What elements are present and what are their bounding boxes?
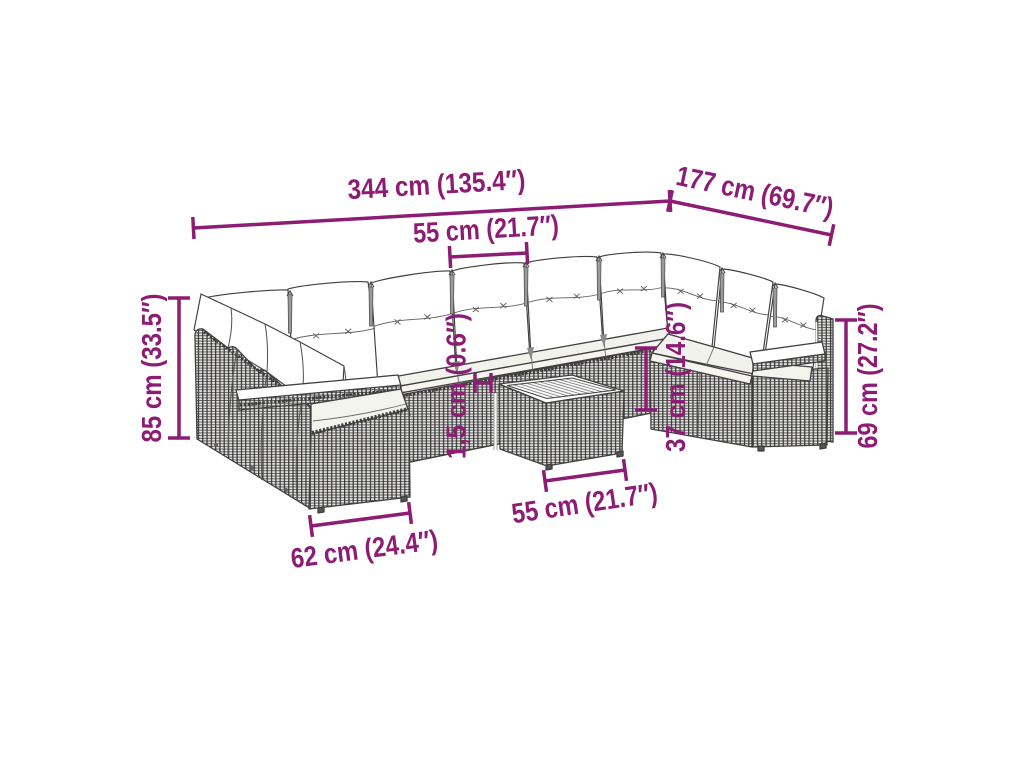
svg-text:69 cm (27.2″): 69 cm (27.2″) bbox=[852, 304, 883, 449]
svg-text:85 cm (33.5″): 85 cm (33.5″) bbox=[136, 294, 167, 443]
svg-text:37 cm (14.6″): 37 cm (14.6″) bbox=[660, 302, 691, 452]
svg-text:1,5 cm (0.6″): 1,5 cm (0.6″) bbox=[441, 313, 472, 459]
